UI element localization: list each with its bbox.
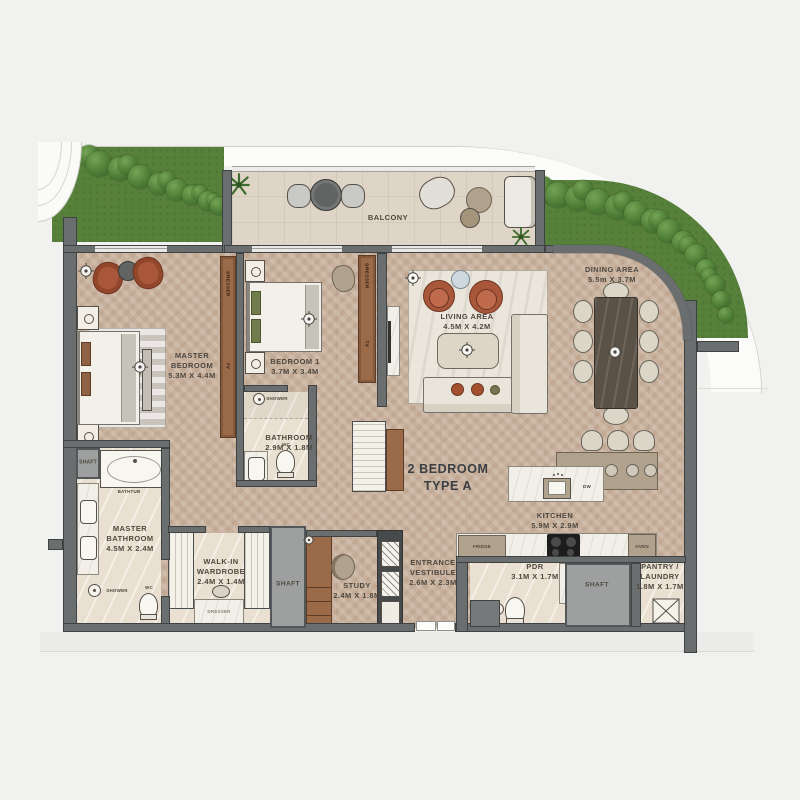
room-label-wardrobe: WALK-IN WARDROBE 2.4M X 1.4M <box>197 557 245 587</box>
shaft-label: SHAFT <box>585 582 609 591</box>
wc-label: WC <box>145 585 153 591</box>
shaft-label: SHAFT <box>79 460 97 467</box>
toilet-tank <box>277 472 294 478</box>
bar-stool <box>581 430 603 451</box>
shaft <box>565 563 631 627</box>
wall <box>63 217 77 632</box>
room-label-pdr: PDR 3.1M X 1.7M <box>511 562 558 582</box>
wall <box>236 253 244 487</box>
dining-chair <box>639 360 659 383</box>
balcony-table <box>310 179 342 211</box>
ceiling-light-icon <box>78 263 94 279</box>
wall <box>63 440 170 448</box>
hall-cabinet <box>386 429 404 491</box>
room-label-kitchen: KITCHEN 5.9M X 2.9M <box>531 511 578 531</box>
master-bed <box>76 331 140 425</box>
tv-console <box>387 306 400 376</box>
study-closet <box>377 530 403 630</box>
bar-stool <box>607 430 629 451</box>
unit-type-label: 2 BEDROOM TYPE A <box>407 461 488 495</box>
swivel-chair <box>469 280 503 314</box>
wall <box>168 526 206 533</box>
nightstand <box>245 260 265 282</box>
dresser-label-vertical: DRESSER <box>226 271 231 296</box>
toilet <box>276 450 295 474</box>
dining-chair <box>573 360 593 383</box>
ceiling-light-icon <box>405 270 421 286</box>
nightstand <box>245 352 265 374</box>
room-label-balcony: BALCONY <box>368 213 408 223</box>
swivel-chair <box>423 280 455 312</box>
toilet-tank <box>140 614 157 620</box>
curb-faint-line <box>698 388 768 389</box>
wall <box>697 341 739 352</box>
wall <box>684 300 697 653</box>
desk <box>306 534 332 626</box>
sidewalk-bottom <box>40 632 754 652</box>
window <box>95 246 167 252</box>
double-vanity <box>77 483 99 575</box>
hall-closet <box>352 421 386 492</box>
balcony-chair <box>341 184 365 208</box>
dresser-label: DRESSER <box>207 609 230 615</box>
ceiling-light-icon <box>303 534 315 546</box>
wall <box>161 448 170 560</box>
room-label-master-bedroom: MASTER BEDROOM 5.3M X 4.4M <box>168 351 215 381</box>
wall <box>456 558 468 632</box>
entry-door-leaf <box>416 621 436 631</box>
sliding-door <box>392 246 482 252</box>
ceiling-light-icon <box>132 359 148 375</box>
wall <box>238 526 270 533</box>
balcony-floor <box>232 170 535 253</box>
wardrobe-closet <box>244 531 270 609</box>
tv-label-vertical: TV <box>226 363 231 370</box>
room-label-bedroom-1: BEDROOM 1 3.7M X 3.4M <box>270 357 319 377</box>
shower-label: SHOWER <box>266 396 287 402</box>
wall <box>377 253 387 407</box>
tv-label-vertical: TV <box>365 341 370 348</box>
shaft <box>270 526 306 628</box>
wardrobe-closet <box>168 531 194 609</box>
balcony-sofa <box>504 176 536 228</box>
washer-icon <box>652 598 680 624</box>
ceiling-light-icon <box>459 342 475 358</box>
entry-door-leaf <box>437 621 455 631</box>
wall <box>236 480 317 487</box>
shower-icon <box>253 393 265 405</box>
wall <box>244 385 288 392</box>
wall <box>48 539 63 550</box>
sofa-chaise <box>511 314 548 414</box>
side-table <box>451 270 470 289</box>
sliding-door <box>252 246 342 252</box>
shower-label: SHOWER <box>106 588 127 594</box>
room-label-pantry: PANTRY / LAUNDRY 1.8M X 1.7M <box>636 562 683 592</box>
wall <box>535 170 545 253</box>
floor-plan: BALCONY MASTER BEDROOM 5.3M X 4.4M BEDRO… <box>0 0 800 800</box>
wall <box>306 530 377 537</box>
bar-stool <box>633 430 655 451</box>
dresser-label-vertical: DRESSER <box>365 263 370 288</box>
wc-label: WC <box>282 442 290 448</box>
room-label-master-bathroom: MASTER BATHROOM 4.5M X 2.4M <box>106 524 153 554</box>
shower-icon <box>88 584 101 597</box>
dishwasher-label: DW <box>583 484 591 490</box>
balcony-rail <box>232 166 535 172</box>
nightstand <box>77 306 99 330</box>
fridge-label: FRIDGE <box>473 544 491 550</box>
room-label-study: STUDY 2.4M X 1.8M <box>333 581 380 601</box>
wall <box>63 623 415 632</box>
cooktop <box>547 534 580 558</box>
wall <box>161 596 170 624</box>
room-label-vestibule: ENTRANCE VESTIBULE 2.6M X 2.3M <box>409 558 456 588</box>
bathtub <box>100 450 168 488</box>
ceiling-light-icon <box>301 311 317 327</box>
room-label-living-area: LIVING AREA 4.5M X 4.2M <box>440 312 493 332</box>
balcony-chair <box>287 184 311 208</box>
ceiling-light-icon <box>607 344 623 360</box>
pdr-wall-block <box>470 600 500 627</box>
bathtub-label: BATHTUB <box>118 489 141 495</box>
shaft-label: SHAFT <box>276 581 300 590</box>
room-label-dining-area: DINING AREA 5.5m X 3.7M <box>585 265 639 285</box>
oven-label: OVEN <box>635 544 649 550</box>
wall <box>222 170 232 253</box>
balcony-side-table <box>460 208 480 228</box>
